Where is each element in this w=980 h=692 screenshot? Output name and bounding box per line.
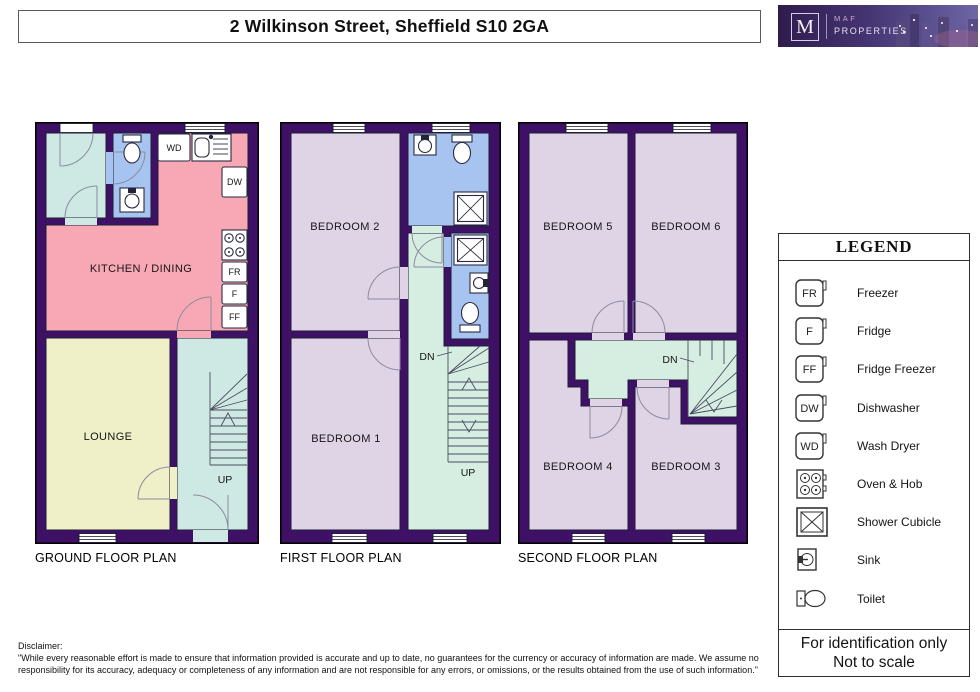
legend-row-dishwasher: DW Dishwasher [794,389,969,427]
fridge-icon: F [794,315,832,347]
legend-label: Wash Dryer [857,439,920,453]
scale-note: Not to scale [833,653,915,672]
brand-logo: M MAF PROPERTIES [778,5,978,47]
bathroom1-toilet-icon [452,135,472,164]
legend-label: Dishwasher [857,401,920,415]
first-floor-title: FIRST FLOOR PLAN [280,551,402,565]
room-label-kitchen: KITCHEN / DINING [90,263,192,275]
room-label-bedroom1: BEDROOM 1 [311,433,381,445]
legend-label: Oven & Hob [857,477,922,491]
legend-row-wash-dryer: WD Wash Dryer [794,427,969,465]
legend-row-fridge: F Fridge [794,312,969,350]
legend-row-sink: Sink [794,541,969,579]
kitchen-sink-icon [192,134,231,161]
wash-dryer-icon: WD [158,134,190,161]
identification-note: For identification only [801,634,947,653]
svg-text:FR: FR [802,288,817,300]
room-label-lounge: LOUNGE [84,431,133,443]
legend-row-shower-cubicle: Shower Cubicle [794,503,969,541]
stairs-up-label: UP [461,467,476,479]
ground-floor-title: GROUND FLOOR PLAN [35,551,177,565]
sink-icon [794,545,832,575]
wash-dryer-icon: WD [794,430,832,462]
legend-row-fridge-freezer: FF Fridge Freezer [794,350,969,388]
rear-porch-step [193,530,228,542]
oven-hob-icon [794,467,832,501]
bathroom1-window [432,124,470,133]
wc-toilet-icon [123,135,141,163]
shower-cubicle1-icon [454,192,487,225]
bathroom2-toilet-icon [460,303,480,333]
legend-items: FR Freezer F Fridge FF Fridge Freezer DW… [779,261,969,629]
legend-row-oven-hob: Oven & Hob [794,465,969,503]
svg-text:F: F [232,289,238,299]
disclaimer-block: Disclaimer: "While every reasonable effo… [18,641,768,676]
legend-title: LEGEND [779,234,969,261]
fridge-unit-icon: F [222,284,247,304]
legend-label: Toilet [857,592,885,606]
header-title-box: 2 Wilkinson Street, Sheffield S10 2GA [18,10,761,43]
dishwasher-icon: DW [794,392,832,424]
legend-footer: For identification only Not to scale [779,629,969,676]
floorplan-page: { "header": { "title": "2 Wilkinson Stre… [0,0,980,692]
fridge-freezer-icon: FF [794,353,832,385]
page-title: 2 Wilkinson Street, Sheffield S10 2GA [230,16,549,37]
disclaimer-text: "While every reasonable effort is made t… [18,653,768,676]
bathroom2-sink-icon [470,273,488,293]
svg-text:DW: DW [227,177,242,187]
svg-text:FF: FF [803,364,817,376]
bedroom6-window [673,124,711,133]
freezer-unit-icon: FR [222,262,247,282]
ground-floor-plan: WD DW FR F FF KITCHEN / DINING LOUNGE UP [35,122,259,544]
lounge-window [79,534,116,543]
bedroom1-window [332,534,367,543]
fridge-freezer-unit-icon: FF [222,306,247,328]
stairs-down-label: DN [419,351,434,363]
bedroom4-window [572,534,605,543]
room-label-bedroom4: BEDROOM 4 [543,461,613,473]
first-floor-plan: BEDROOM 2 BEDROOM 1 DN UP [280,122,501,544]
bathroom1-sink-icon [414,135,436,155]
logo-divider [826,14,827,39]
oven-hob-icon [222,230,247,260]
stairs-down-label: DN [662,354,677,366]
wc-sink-icon [120,188,144,212]
legend-label: Fridge [857,324,891,338]
shower-cubicle-icon [794,505,832,539]
kitchen-window [185,124,225,133]
svg-text:WD: WD [167,143,182,153]
legend-row-toilet: Toilet [794,580,969,618]
svg-text:F: F [806,326,813,338]
shower-cubicle2-icon [454,235,487,265]
room-label-bedroom2: BEDROOM 2 [310,221,380,233]
bedroom2-window [333,124,365,133]
legend-label: Fridge Freezer [857,362,936,376]
bedroom6-room [635,133,737,333]
logo-brand-name: MAF [834,14,857,23]
toilet-icon [794,585,832,613]
logo-brand-word: PROPERTIES [834,26,908,36]
legend-label: Freezer [857,286,898,300]
legend-label: Sink [857,553,880,567]
second-floor-title: SECOND FLOOR PLAN [518,551,658,565]
landing-window [433,534,467,543]
room-label-bedroom3: BEDROOM 3 [651,461,721,473]
logo-monogram: M [791,13,819,41]
svg-text:FR: FR [229,267,241,277]
bedroom5-window [566,124,608,133]
freezer-icon: FR [794,277,832,309]
room-label-bedroom6: BEDROOM 6 [651,221,721,233]
svg-text:FF: FF [229,312,240,322]
svg-text:WD: WD [800,441,818,453]
dishwasher-icon: DW [222,167,247,197]
legend-label: Shower Cubicle [857,515,941,529]
svg-text:DW: DW [800,403,819,415]
second-floor-plan: BEDROOM 5 BEDROOM 6 BEDROOM 4 BEDROOM 3 … [518,122,748,544]
legend-panel: LEGEND FR Freezer F Fridge FF Fridge Fre… [778,233,970,677]
legend-row-freezer: FR Freezer [794,274,969,312]
bedroom3-window [672,534,705,543]
disclaimer-label: Disclaimer: [18,641,768,651]
room-label-bedroom5: BEDROOM 5 [543,221,613,233]
stairs-up-label: UP [218,474,233,486]
